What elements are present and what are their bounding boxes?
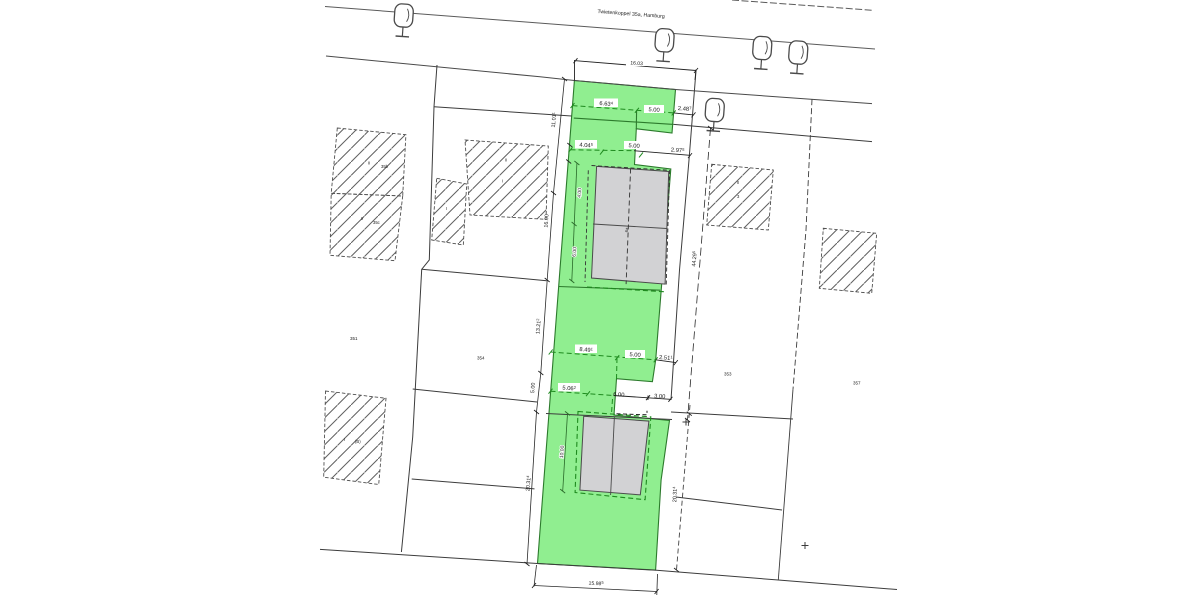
- svg-text:16.00: 16.00: [543, 214, 550, 228]
- svg-text:10.00: 10.00: [559, 445, 566, 458]
- svg-text:35c: 35c: [373, 220, 380, 225]
- svg-text:II: II: [368, 161, 370, 166]
- svg-text:II: II: [361, 216, 363, 221]
- svg-text:II: II: [737, 180, 739, 185]
- svg-text:35b: 35b: [381, 164, 389, 169]
- svg-text:353: 353: [724, 372, 732, 377]
- svg-text:4.00: 4.00: [577, 188, 584, 198]
- svg-text:5.00: 5.00: [530, 382, 537, 393]
- svg-text:16.03: 16.03: [630, 60, 643, 67]
- svg-text:I: I: [446, 206, 447, 211]
- svg-text:5.00: 5.00: [628, 143, 640, 150]
- svg-text:(B): (B): [355, 439, 361, 444]
- svg-text:6.00: 6.00: [613, 392, 625, 399]
- svg-text:357: 357: [853, 381, 861, 386]
- svg-text:351: 351: [350, 336, 358, 341]
- svg-text:354: 354: [477, 356, 485, 361]
- svg-text:5.00: 5.00: [648, 107, 660, 114]
- svg-text:6.00: 6.00: [572, 247, 579, 257]
- svg-text:II: II: [505, 158, 507, 163]
- svg-text:I: I: [344, 437, 345, 442]
- svg-text:I: I: [502, 179, 503, 184]
- svg-text:5.00: 5.00: [629, 352, 641, 359]
- svg-text:3.00: 3.00: [654, 394, 666, 401]
- svg-text:20.314: 20.314: [672, 487, 679, 503]
